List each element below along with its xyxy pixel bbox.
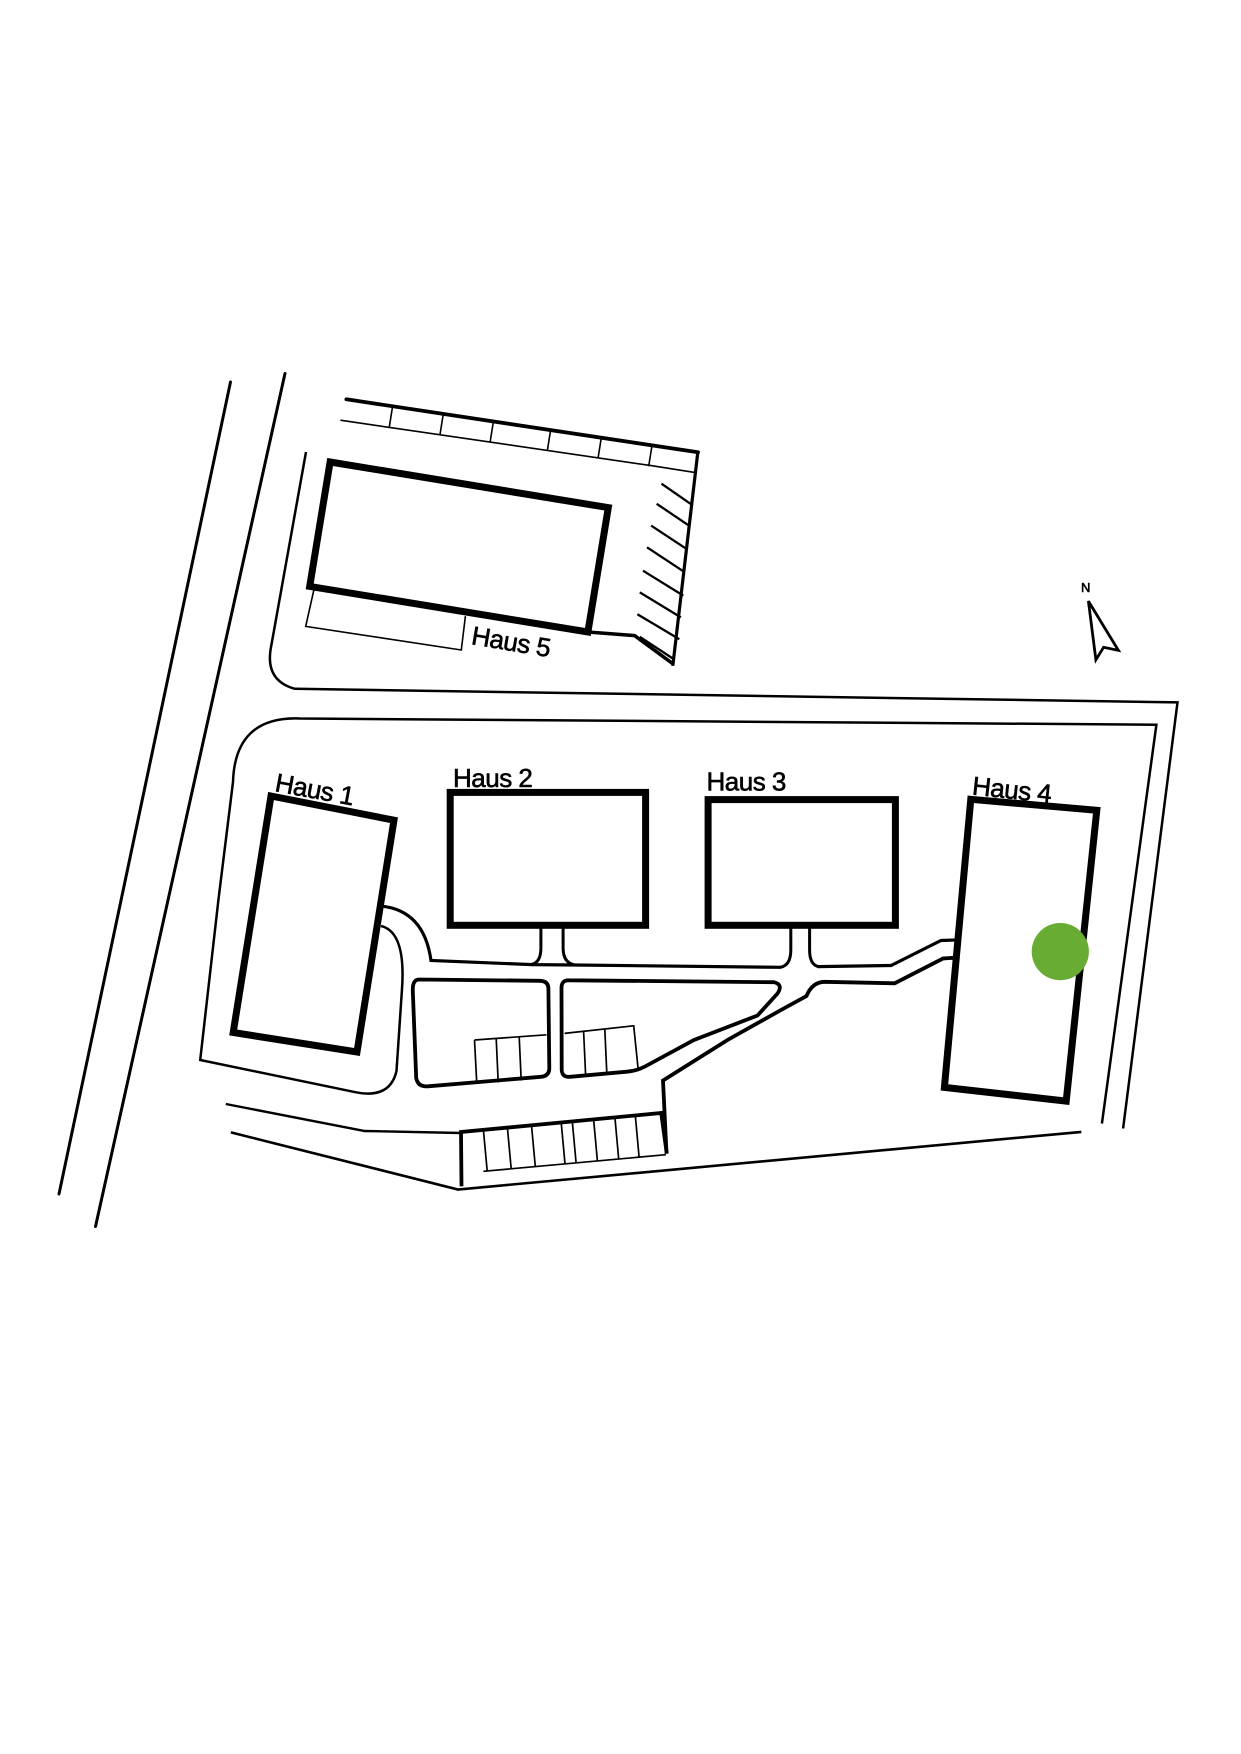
svg-text:N: N — [1081, 580, 1090, 595]
svg-text:Haus 3: Haus 3 — [707, 767, 786, 797]
svg-text:Haus 2: Haus 2 — [453, 763, 532, 793]
